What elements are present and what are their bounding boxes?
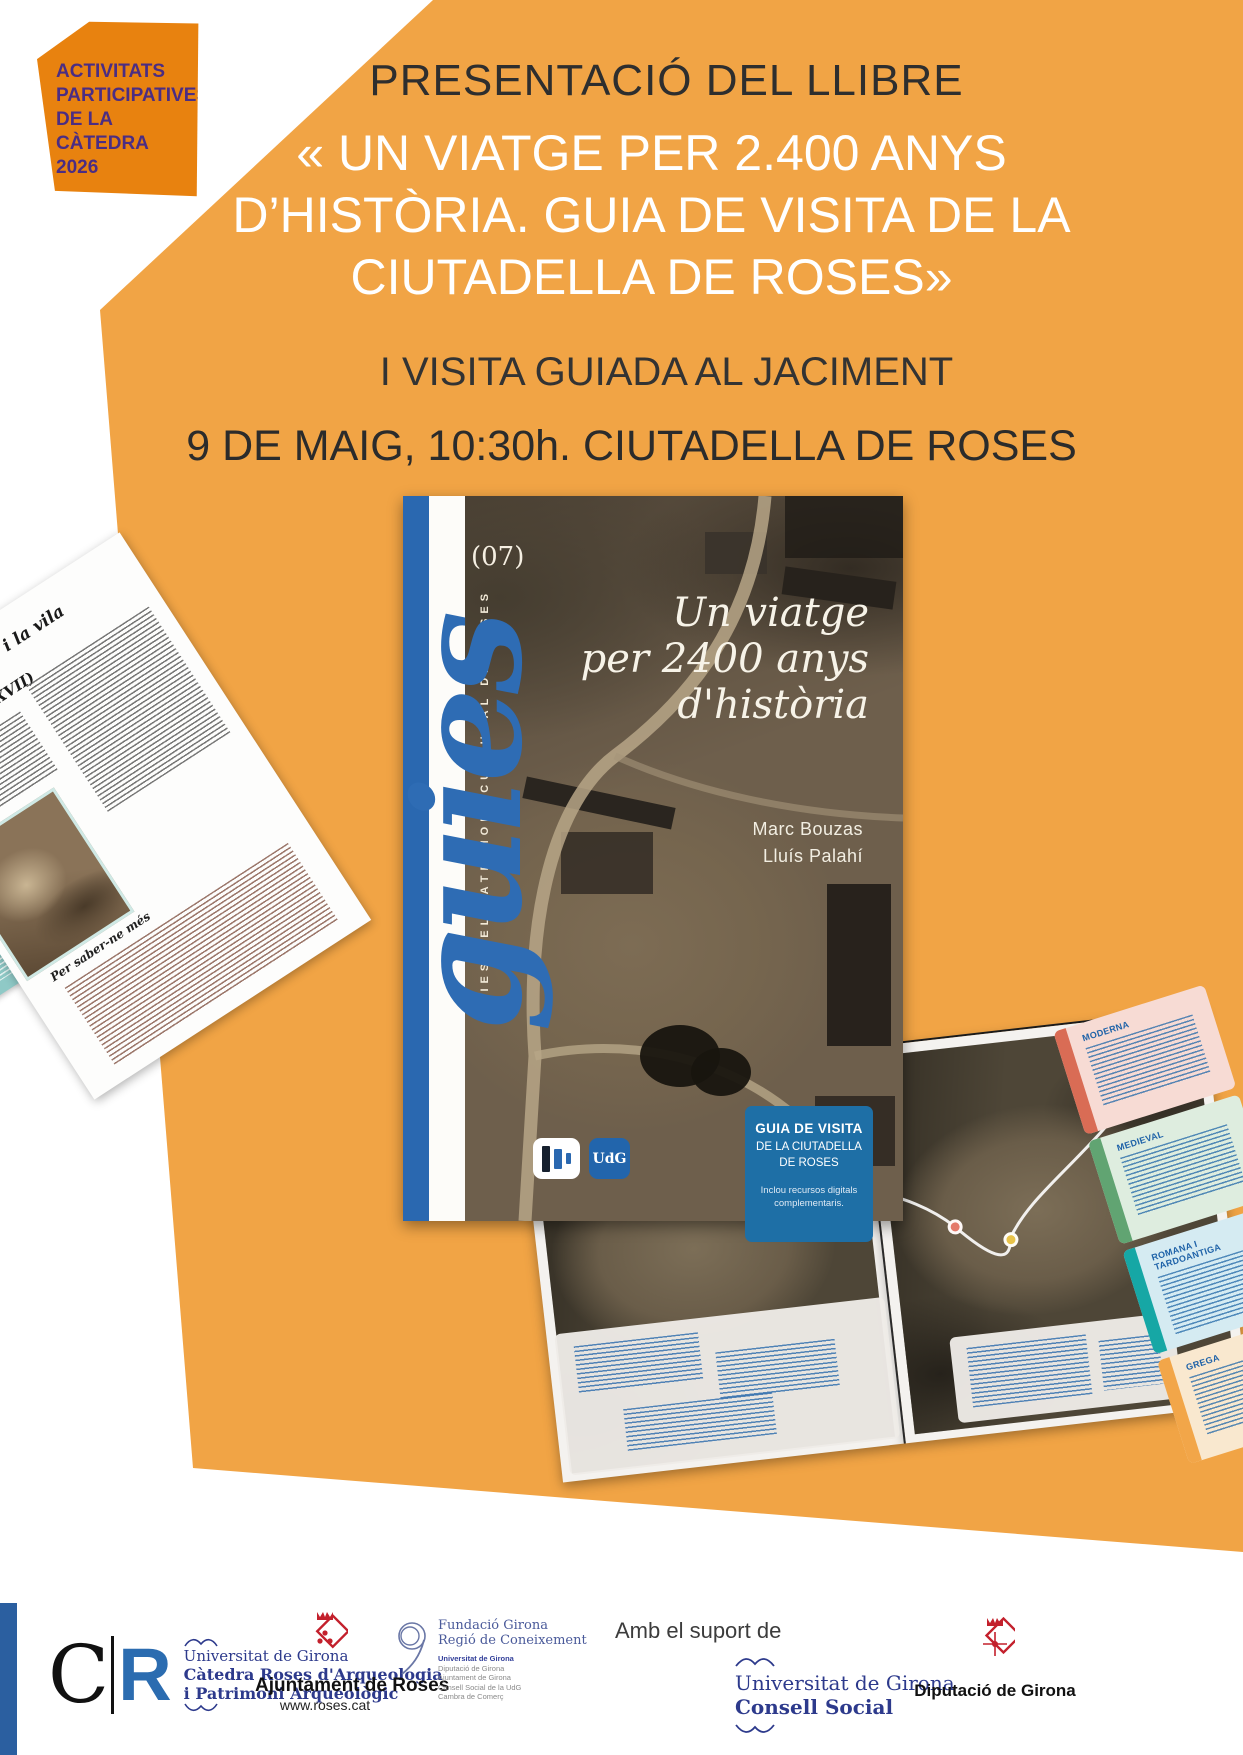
fundacio-text: Fundació Girona Regió de Coneixement Uni…	[438, 1618, 587, 1702]
spiral-nine-icon	[390, 1618, 432, 1676]
legend-text-column	[623, 1392, 777, 1451]
book-cover: (07) GUIES DEL PATRIMONI CULTURAL DE ROS…	[403, 496, 903, 1221]
cover-publisher-logos: UdG	[533, 1138, 630, 1179]
roses-name: Ajuntament de Roses	[255, 1675, 395, 1697]
cover-title-line: d'història	[581, 682, 869, 728]
fundacio-name-line: Fundació Girona	[438, 1618, 587, 1633]
diputacio-crest-icon	[975, 1616, 1015, 1672]
museum-logo	[533, 1138, 580, 1179]
book-title-line: « UN VIATGE PER 2.400 ANYS	[80, 122, 1223, 184]
cover-title-line: Un viatge	[581, 590, 869, 636]
author-name: Lluís Palahí	[752, 843, 863, 870]
logo-bar	[542, 1146, 550, 1172]
diputacio-name: Diputació de Girona	[905, 1681, 1085, 1701]
cover-title: Un viatge per 2400 anys d'història	[581, 590, 869, 728]
diputacio-girona-logo: Diputació de Girona	[905, 1616, 1085, 1701]
fundacio-partner: Ajuntament de Girona	[438, 1673, 587, 1683]
info-box-note-line: Inclou recursos digitals	[745, 1184, 873, 1197]
fundacio-name-line: Regió de Coneixement	[438, 1633, 587, 1648]
fundacio-girona-logo: Fundació Girona Regió de Coneixement Uni…	[390, 1618, 587, 1702]
series-number: (07)	[471, 542, 524, 572]
book-title-heading: « UN VIATGE PER 2.400 ANYS D’HISTÒRIA. G…	[80, 122, 1223, 308]
roses-url: www.roses.cat	[255, 1697, 395, 1713]
fundacio-partner: Cambra de Comerç	[438, 1692, 587, 1702]
cr-logo-c: C	[48, 1640, 109, 1710]
logo-bar	[554, 1149, 562, 1169]
fundacio-partner: Consell Social de la UdG	[438, 1683, 587, 1693]
cover-title-line: per 2400 anys	[581, 636, 869, 682]
cr-logo-r: R	[118, 1642, 171, 1708]
info-box-heading: GUIA DE VISITA	[745, 1121, 873, 1136]
guies-script-logo: guies	[393, 599, 543, 1049]
legend-text-column	[966, 1334, 1092, 1407]
presentation-kicker: PRESENTACIÓ DEL LLIBRE	[140, 56, 1193, 106]
book-title-line: D’HISTÒRIA. GUIA DE VISITA DE LA	[80, 184, 1223, 246]
logo-bar	[566, 1153, 571, 1164]
guided-visit-subtitle: I VISITA GUIADA AL JACIMENT	[140, 350, 1193, 395]
info-box-note-line: complementaris.	[745, 1197, 873, 1210]
legend-text-column	[574, 1332, 704, 1394]
brace-icon	[735, 1724, 775, 1734]
fundacio-partner: Diputació de Girona	[438, 1664, 587, 1674]
brace-icon	[735, 1657, 775, 1667]
cr-logo-divider	[111, 1636, 114, 1714]
sponsors-footer: C R Universitat de Girona Càtedra Roses …	[0, 1600, 1243, 1755]
event-poster: ACTIVITATS PARTICIPATIVES DE LA CÀTEDRA …	[0, 0, 1243, 1755]
fundacio-partner: Universitat de Girona	[438, 1654, 587, 1664]
brace-icon	[184, 1638, 218, 1647]
excavation-photo	[0, 787, 134, 981]
info-box-heading-line: DE LA CIUTADELLA	[745, 1139, 873, 1155]
brace-icon	[184, 1703, 218, 1712]
roses-crest-icon	[302, 1610, 348, 1666]
info-box-heading-line: DE ROSES	[745, 1155, 873, 1171]
legend-text-column	[715, 1339, 840, 1400]
footer-accent-bar	[0, 1603, 17, 1755]
event-date-location: 9 DE MAIG, 10:30h. CIUTADELLA DE ROSES	[40, 422, 1223, 471]
author-name: Marc Bouzas	[752, 816, 863, 843]
ajuntament-roses-logo: Ajuntament de Roses www.roses.cat	[255, 1610, 395, 1713]
udg-logo: UdG	[589, 1138, 630, 1179]
fundacio-partners: Universitat de Girona Diputació de Giron…	[438, 1654, 587, 1702]
support-label: Amb el suport de	[615, 1618, 781, 1644]
book-title-line: CIUTADELLA DE ROSES»	[80, 246, 1223, 308]
info-box-note: Inclou recursos digitals complementaris.	[745, 1184, 873, 1210]
cover-info-box: GUIA DE VISITA DE LA CIUTADELLA DE ROSES…	[745, 1106, 873, 1242]
cover-authors: Marc Bouzas Lluís Palahí	[752, 816, 863, 870]
